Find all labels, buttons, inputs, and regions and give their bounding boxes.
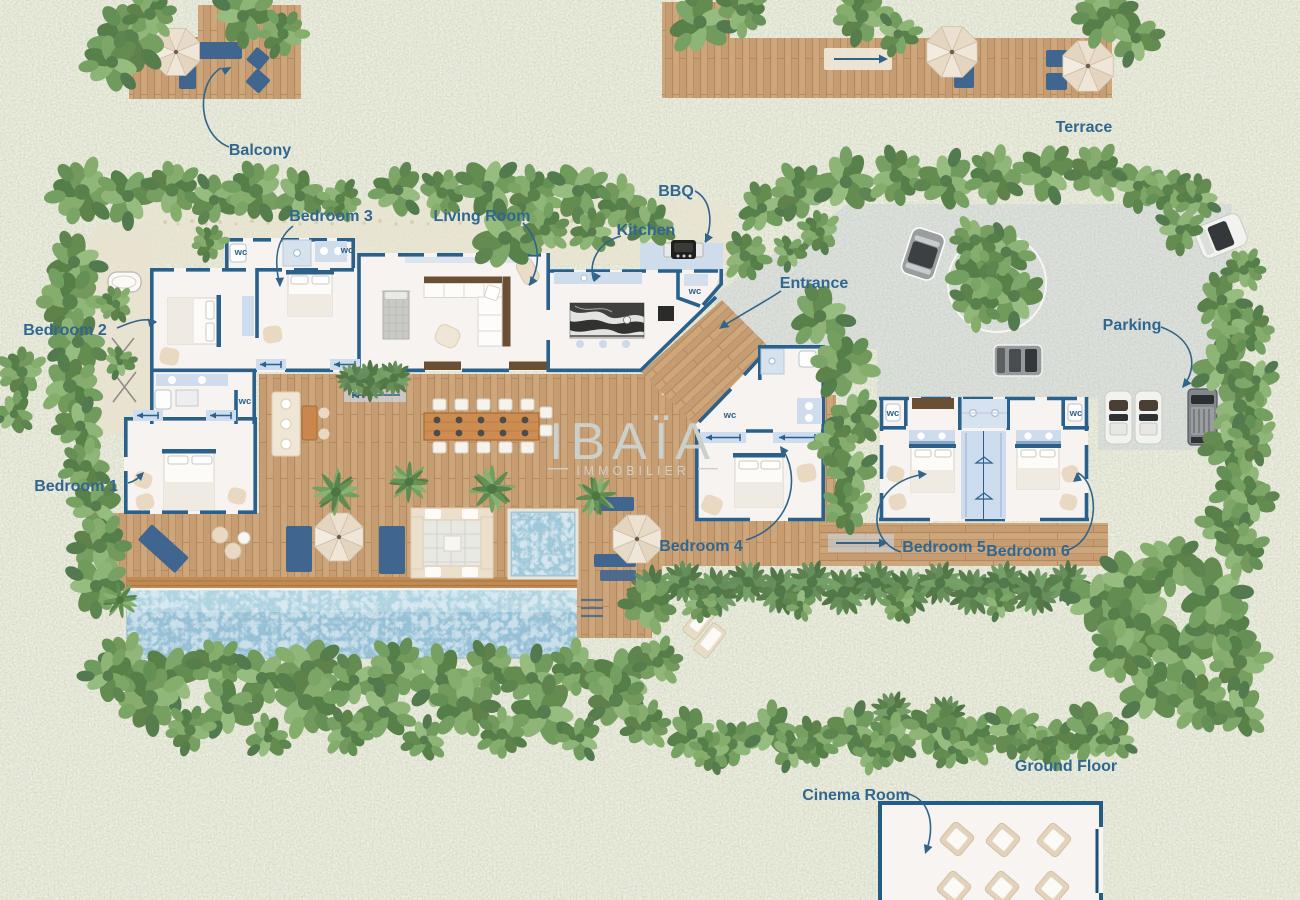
svg-text:wc: wc (886, 408, 900, 419)
svg-text:Living Room: Living Room (434, 208, 531, 225)
svg-text:wc: wc (1069, 408, 1083, 419)
svg-text:Bedroom 2: Bedroom 2 (23, 322, 107, 339)
svg-text:Bedroom 5: Bedroom 5 (902, 539, 986, 556)
svg-text:wc: wc (723, 410, 737, 421)
svg-text:Cinema Room: Cinema Room (802, 787, 910, 804)
svg-text:IMMOBILIER: IMMOBILIER (576, 464, 690, 478)
svg-text:IBAÏA: IBAÏA (549, 413, 717, 471)
svg-text:Ground Floor: Ground Floor (1015, 758, 1117, 775)
svg-text:wc: wc (340, 245, 354, 256)
svg-text:Terrace: Terrace (1056, 119, 1113, 136)
svg-text:BBQ: BBQ (658, 183, 694, 200)
svg-text:wc: wc (234, 247, 248, 258)
svg-text:Bedroom 3: Bedroom 3 (289, 208, 373, 225)
svg-text:Bedroom 4: Bedroom 4 (659, 538, 743, 555)
svg-text:Balcony: Balcony (229, 142, 291, 159)
svg-text:Entrance: Entrance (780, 275, 849, 292)
svg-text:Bedroom 1: Bedroom 1 (34, 478, 118, 495)
svg-text:wc: wc (688, 286, 702, 297)
svg-text:Bedroom 6: Bedroom 6 (986, 543, 1070, 560)
svg-text:Parking: Parking (1103, 317, 1162, 334)
svg-text:Kitchen: Kitchen (617, 222, 676, 239)
svg-text:wc: wc (238, 396, 252, 407)
